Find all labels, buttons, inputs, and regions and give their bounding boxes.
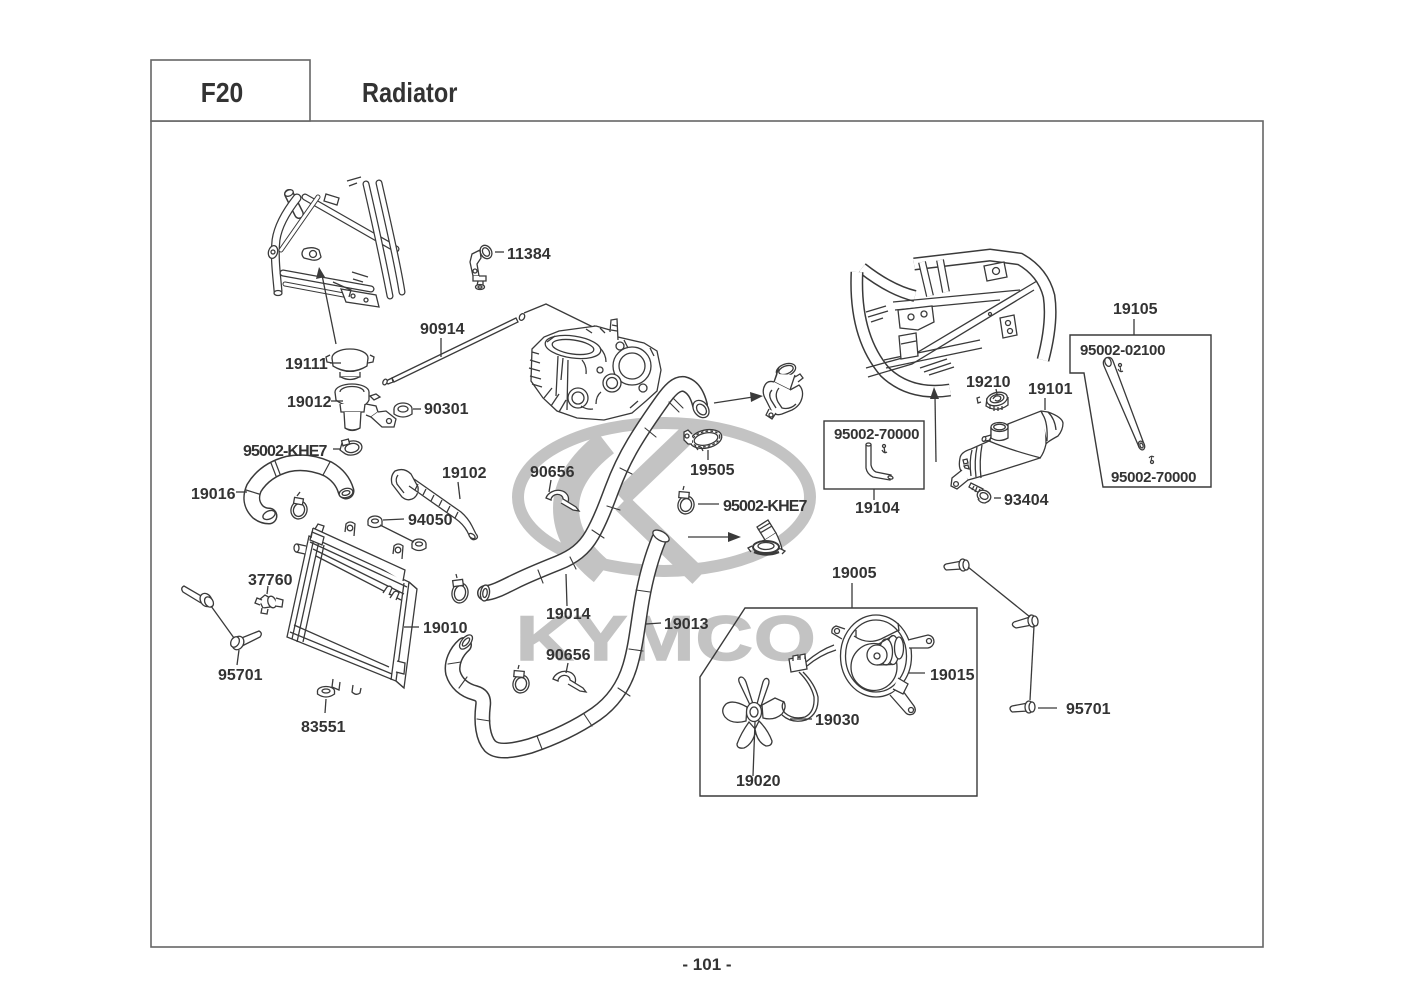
svg-text:19020: 19020 bbox=[736, 773, 781, 790]
svg-text:95002-KHE7: 95002-KHE7 bbox=[723, 498, 808, 515]
svg-text:93404: 93404 bbox=[1004, 492, 1049, 509]
svg-text:19030: 19030 bbox=[815, 712, 860, 729]
svg-text:19102: 19102 bbox=[442, 465, 487, 482]
svg-text:19013: 19013 bbox=[664, 616, 709, 633]
svg-text:95701: 95701 bbox=[1066, 701, 1111, 718]
svg-text:19005: 19005 bbox=[832, 565, 877, 582]
svg-text:19104: 19104 bbox=[855, 500, 900, 517]
svg-text:90914: 90914 bbox=[420, 321, 465, 338]
svg-text:90301: 90301 bbox=[424, 401, 469, 418]
svg-text:Radiator: Radiator bbox=[362, 78, 457, 108]
svg-text:19010: 19010 bbox=[423, 620, 468, 637]
svg-text:19012: 19012 bbox=[287, 394, 332, 411]
svg-text:90656: 90656 bbox=[546, 647, 591, 664]
svg-text:F20: F20 bbox=[201, 77, 243, 109]
svg-text:19111: 19111 bbox=[285, 356, 328, 373]
svg-text:94050: 94050 bbox=[408, 512, 453, 529]
svg-text:19105: 19105 bbox=[1113, 301, 1158, 318]
svg-text:95002-70000: 95002-70000 bbox=[1111, 469, 1196, 486]
svg-text:19014: 19014 bbox=[546, 606, 591, 623]
svg-text:19101: 19101 bbox=[1028, 381, 1073, 398]
svg-text:95002-02100: 95002-02100 bbox=[1080, 342, 1165, 359]
svg-text:19210: 19210 bbox=[966, 374, 1011, 391]
svg-text:83551: 83551 bbox=[301, 719, 346, 736]
svg-text:90656: 90656 bbox=[530, 464, 575, 481]
svg-text:19505: 19505 bbox=[690, 462, 735, 479]
svg-text:19016: 19016 bbox=[191, 486, 236, 503]
svg-text:95002-KHE7: 95002-KHE7 bbox=[243, 443, 328, 460]
svg-text:37760: 37760 bbox=[248, 572, 293, 589]
svg-text:95701: 95701 bbox=[218, 667, 263, 684]
svg-text:19015: 19015 bbox=[930, 667, 975, 684]
svg-text:11384: 11384 bbox=[507, 246, 551, 263]
svg-text:- 101 -: - 101 - bbox=[682, 955, 731, 974]
svg-text:95002-70000: 95002-70000 bbox=[834, 426, 919, 443]
